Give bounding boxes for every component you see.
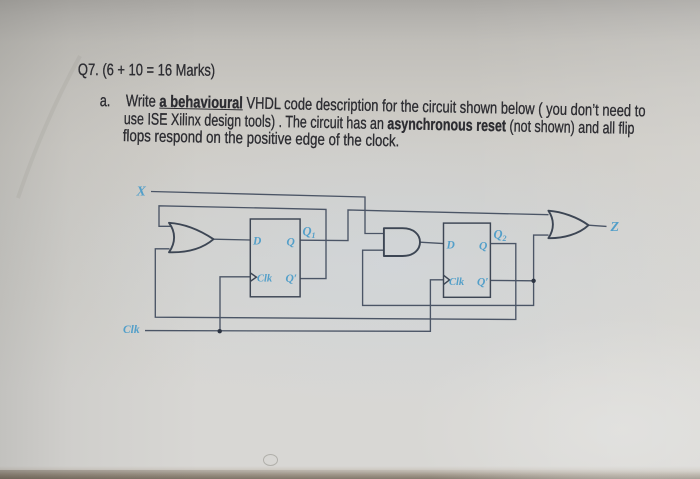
svg-text:Clk: Clk [257, 274, 273, 285]
svg-text:Q′: Q′ [286, 273, 298, 285]
svg-text:Q1: Q1 [303, 225, 316, 241]
svg-text:Q: Q [287, 237, 295, 249]
svg-text:Q2: Q2 [494, 228, 507, 244]
svg-text:Clk: Clk [449, 277, 465, 288]
svg-text:D: D [446, 240, 456, 252]
svg-text:D: D [252, 236, 262, 248]
svg-text:Clk: Clk [123, 324, 140, 336]
svg-text:Q: Q [479, 241, 487, 253]
svg-text:Q′: Q′ [477, 277, 489, 289]
svg-text:Z: Z [610, 220, 620, 235]
